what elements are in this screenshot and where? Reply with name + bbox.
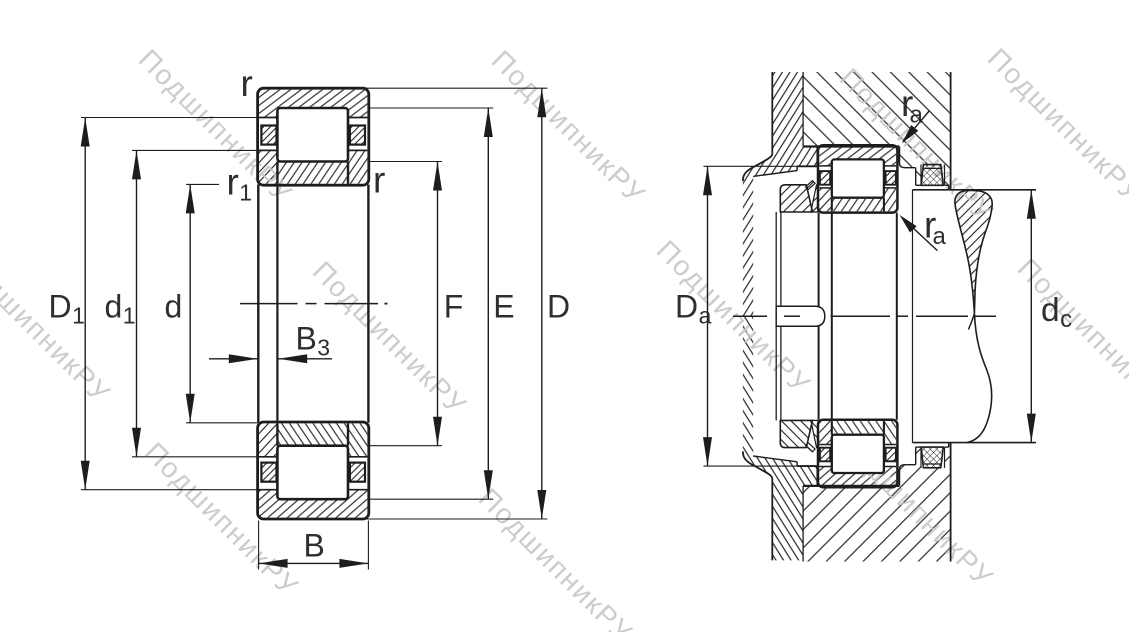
svg-text:a: a (910, 102, 924, 129)
svg-text:E: E (493, 289, 514, 325)
svg-text:D: D (547, 289, 570, 325)
svg-text:D: D (49, 289, 72, 325)
svg-text:F: F (444, 289, 464, 325)
svg-text:3: 3 (317, 335, 330, 361)
svg-text:d: d (1041, 292, 1060, 329)
svg-text:c: c (1060, 306, 1072, 333)
svg-text:D: D (675, 289, 698, 325)
svg-text:1: 1 (72, 303, 85, 329)
svg-text:r: r (373, 160, 385, 201)
svg-text:a: a (933, 223, 947, 250)
svg-text:r: r (227, 162, 239, 203)
svg-text:1: 1 (239, 180, 252, 206)
svg-text:B: B (296, 321, 317, 357)
svg-text:a: a (699, 303, 712, 329)
svg-text:d: d (105, 289, 123, 325)
svg-text:B: B (304, 528, 325, 564)
svg-text:1: 1 (123, 303, 136, 329)
svg-text:d: d (165, 289, 183, 325)
svg-text:r: r (241, 63, 253, 104)
